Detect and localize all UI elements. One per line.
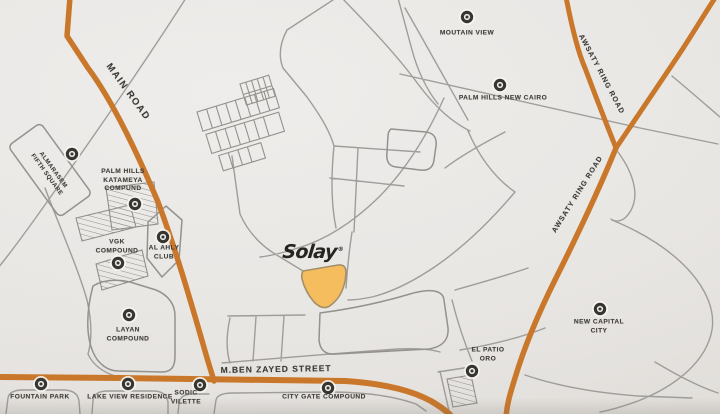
awsaty-ring-road-label-upper: AWSATY RING ROAD — [577, 32, 627, 115]
solay-logo-text: Solay — [281, 241, 337, 263]
mben-zayed-street-label: M.BEN ZAYED STREET — [220, 363, 331, 375]
awsaty-ring-road-label-lower: AWSATY RING ROAD — [550, 154, 605, 234]
map-canvas: MAIN ROAD AWSATY RING ROAD AWSATY RING R… — [0, 0, 720, 414]
place-label-lake-view-residence: LAKE VIEW RESIDENCE — [87, 394, 173, 403]
main-road-label: MAIN ROAD — [104, 61, 153, 122]
place-label-palm-hills-katameya: PALM HILLS KATAMEYA COMPUND — [101, 168, 145, 194]
place-label-almarasem-fifth-square: ALMARASEM FIFTH SQUARE — [28, 148, 70, 197]
place-label-new-capital-city: NEW CAPITAL CITY — [574, 318, 624, 335]
place-label-sodic-vilette: SODIC VILETTE — [171, 389, 201, 406]
place-label-vgk-compound: VGK COMPOUND — [96, 238, 139, 255]
solay-logo: Solay® — [281, 241, 344, 263]
registered-trademark-icon: ® — [337, 246, 344, 253]
place-label-el-patio-oro: EL PATIO ORO — [472, 346, 505, 363]
place-label-layan-compound: LAYAN COMPOUND — [107, 326, 150, 343]
place-label-city-gate-compound: CITY GATE COMPOUND — [282, 394, 366, 403]
place-label-al-ahly-club: AL AHLY CLUB — [149, 244, 180, 261]
place-label-moutain-view: MOUTAIN VIEW — [440, 30, 494, 39]
place-label-palm-hills-new-cairo: PALM HILLS NEW CAIRO — [459, 95, 547, 104]
map-labels: MAIN ROAD AWSATY RING ROAD AWSATY RING R… — [0, 0, 720, 414]
place-label-fountain-park: FOUNTAIN PARK — [10, 394, 69, 403]
